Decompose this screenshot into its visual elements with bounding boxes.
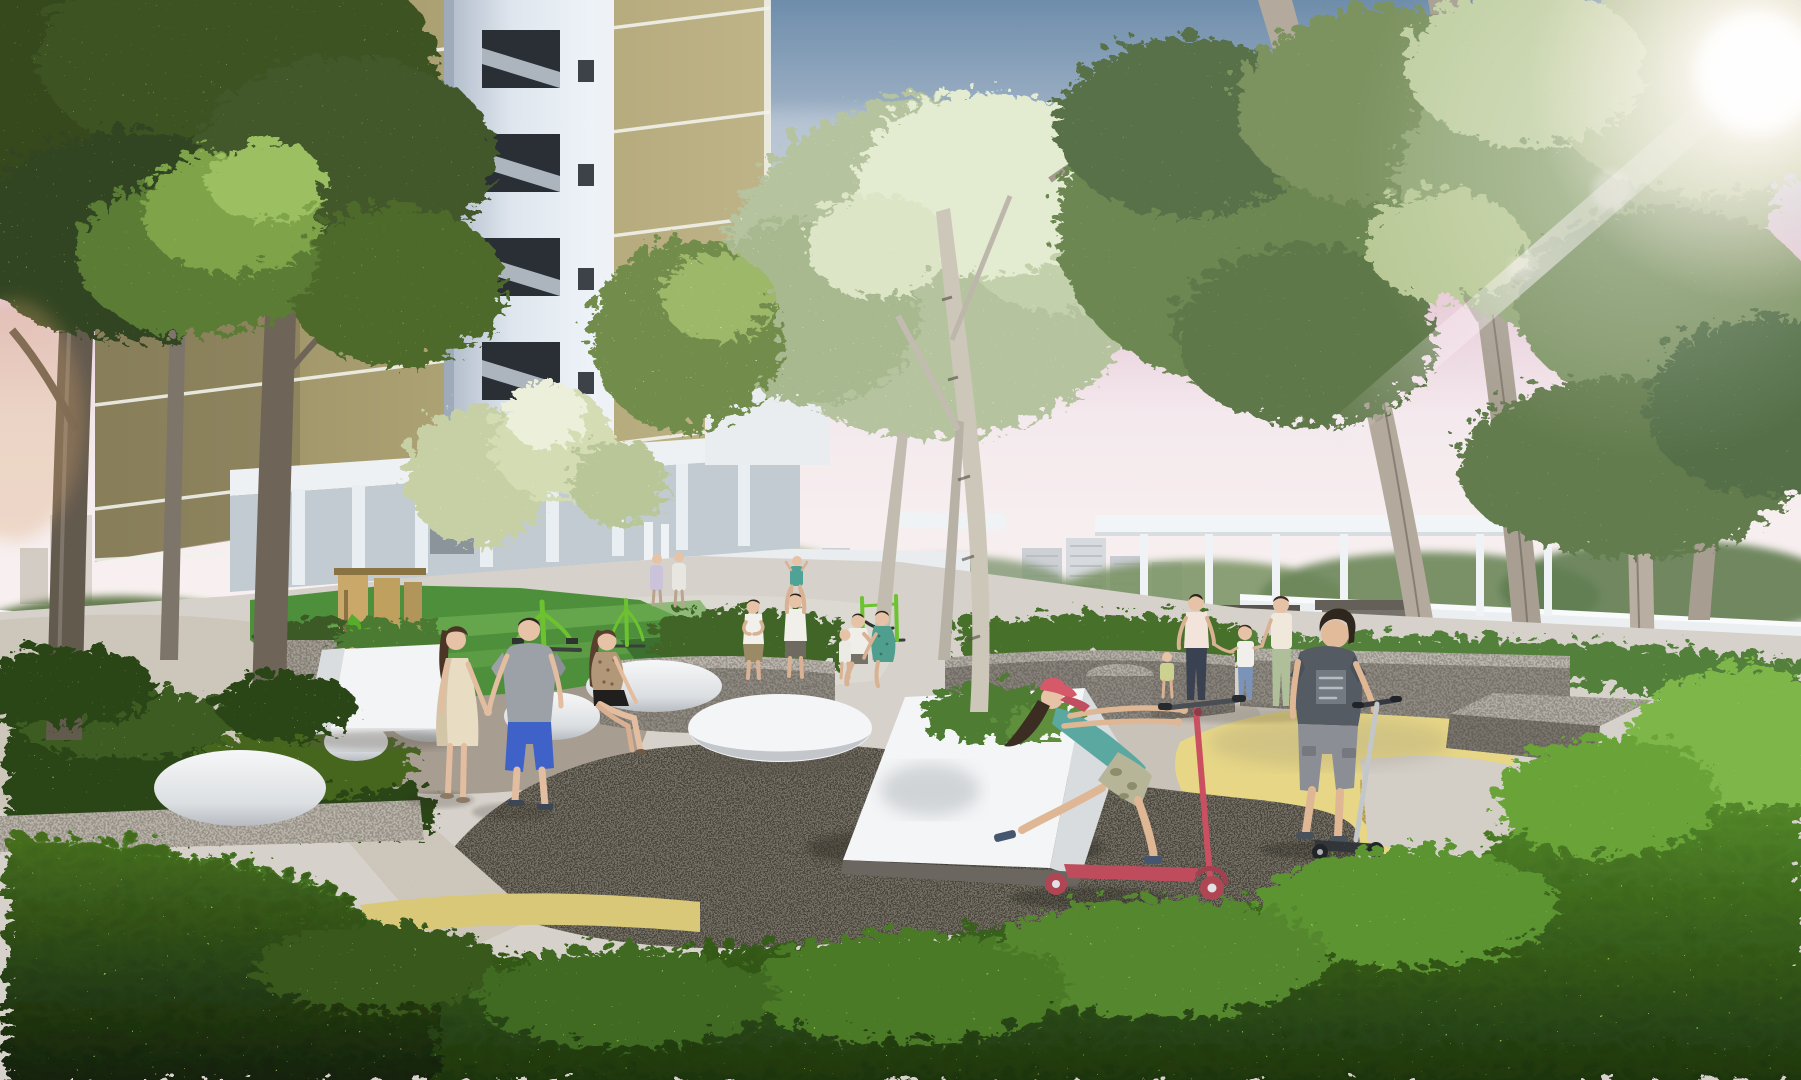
pergola-roof-shadow bbox=[1095, 532, 1570, 536]
pebble-bench-large bbox=[688, 694, 874, 776]
ramp-dapple bbox=[880, 764, 980, 816]
sun-flare bbox=[1316, 0, 1801, 460]
rendering-canvas bbox=[0, 0, 1801, 1080]
pebble-bench bbox=[154, 750, 326, 826]
